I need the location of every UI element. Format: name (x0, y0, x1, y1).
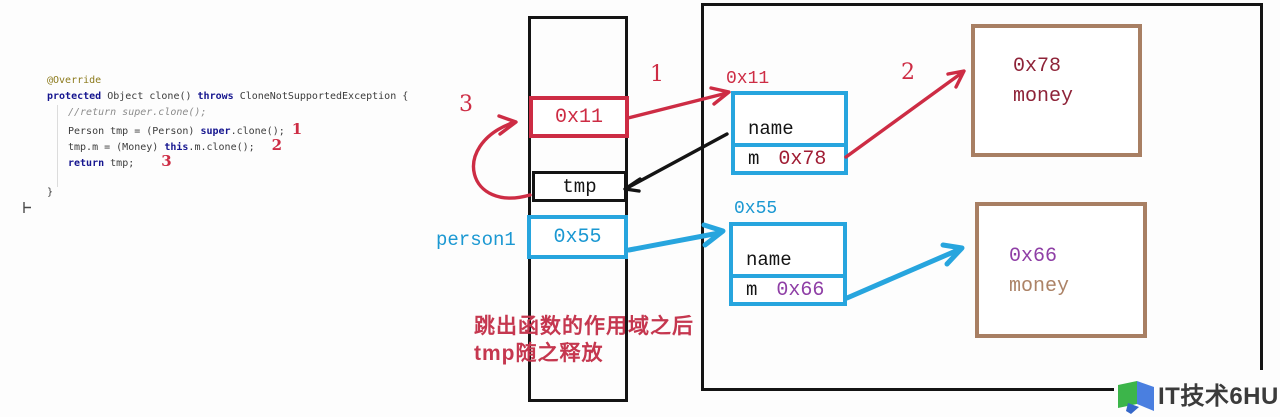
stray-caret-mark (24, 202, 31, 213)
code-token: } (47, 187, 53, 198)
code-token: protected (47, 91, 107, 102)
obj1-m-value: 0x78 (778, 148, 826, 171)
step-1-label: 1 (650, 62, 664, 87)
watermark-text: IT技术6HU (1158, 376, 1279, 411)
heap-money-0x66: 0x66 money (975, 202, 1147, 338)
stack-person1-value: 0x55 (553, 226, 601, 249)
code-step-marker: 1 (292, 120, 302, 138)
code-line: protected Object clone() throws CloneNot… (47, 89, 408, 105)
code-token: tmp; (110, 158, 134, 169)
code-token: @Override (47, 75, 101, 86)
step-3-label: 3 (459, 92, 473, 117)
obj1-field-m: m (748, 148, 759, 170)
code-token: throws (198, 91, 240, 102)
stack-tmp-value: 0x11 (555, 106, 603, 129)
person1-label: person1 (436, 229, 516, 251)
stack-slot-tmp-label: tmp (532, 171, 627, 202)
obj2-m-row: m 0x66 (733, 274, 843, 302)
caption-line-2: tmp随之释放 (474, 340, 694, 367)
obj1-m-row: m 0x78 (735, 143, 844, 171)
obj2-field-m: m (746, 279, 757, 301)
itjishu-logo-icon (1114, 373, 1158, 415)
money2-address: 0x66 (1009, 242, 1143, 272)
money2-label: money (1009, 272, 1143, 302)
step-2-label: 2 (901, 60, 915, 85)
code-line (47, 169, 408, 185)
stack-slot-person1: 0x55 (527, 215, 628, 259)
code-line: } (47, 185, 408, 201)
obj1-field-name: name (748, 118, 794, 140)
heap-object-person1: name m 0x66 (729, 222, 847, 306)
heap-obj2-address-label: 0x55 (734, 199, 777, 219)
code-editor: @Overrideprotected Object clone() throws… (47, 73, 408, 201)
code-token: Person tmp = (Person) (68, 126, 200, 137)
obj2-field-name: name (746, 249, 792, 271)
money1-address: 0x78 (1013, 52, 1138, 82)
obj2-m-value: 0x66 (776, 279, 824, 302)
watermark: IT技术6HU (1114, 370, 1280, 417)
code-line: return tmp;3 (47, 153, 408, 169)
heap-obj1-address-label: 0x11 (726, 69, 769, 89)
code-line: //return super.clone(); (47, 105, 408, 121)
code-step-marker: 3 (161, 152, 171, 170)
heap-money-0x78: 0x78 money (971, 24, 1142, 157)
arrow-step3-curved-icon (474, 116, 530, 198)
code-token: super (200, 126, 230, 137)
stack-slot-tmp-value: 0x11 (529, 96, 629, 138)
obj1-name-row: name (735, 95, 844, 143)
money1-label: money (1013, 82, 1138, 112)
code-line: @Override (47, 73, 408, 89)
code-step-marker: 2 (272, 136, 282, 154)
code-token: CloneNotSupportedException { (240, 91, 409, 102)
code-token: Object clone() (107, 91, 197, 102)
caption-note: 跳出函数的作用域之后 tmp随之释放 (474, 313, 694, 367)
code-token: return (68, 158, 110, 169)
clone-memory-diagram: @Overrideprotected Object clone() throws… (0, 0, 1280, 417)
code-line: tmp.m = (Money) this.m.clone();2 (47, 137, 408, 153)
heap-object-person-copy: name m 0x78 (731, 91, 848, 175)
stack-tmp-label: tmp (562, 176, 596, 198)
code-token: tmp.m = (Money) (68, 142, 164, 153)
code-token: .m.clone(); (188, 142, 254, 153)
code-line: Person tmp = (Person) super.clone();1 (47, 121, 408, 137)
caption-line-1: 跳出函数的作用域之后 (474, 313, 694, 340)
obj2-name-row: name (733, 226, 843, 274)
code-token: //return super.clone(); (68, 107, 206, 118)
